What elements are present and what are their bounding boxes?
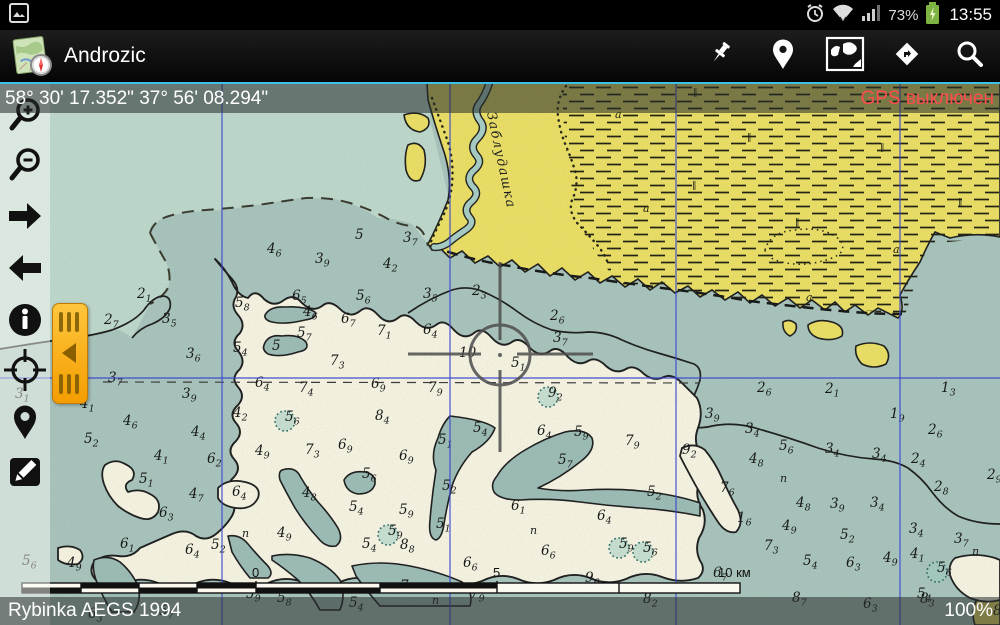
scale-label: 5 bbox=[493, 565, 500, 580]
clock: 13:55 bbox=[949, 5, 992, 25]
coordinate-bar: 58° 30' 17.352" 37° 56' 08.294" GPS выкл… bbox=[0, 84, 1000, 113]
alarm-icon bbox=[805, 3, 825, 28]
pan-right-button[interactable] bbox=[3, 196, 47, 240]
battery-charging-icon bbox=[925, 2, 940, 29]
place-pin-icon bbox=[769, 38, 797, 75]
pan-left-button[interactable] bbox=[3, 248, 47, 292]
crosshair-icon bbox=[3, 348, 47, 397]
chevron-left-icon bbox=[62, 343, 76, 363]
position-button[interactable] bbox=[3, 350, 47, 394]
arrow-left-icon bbox=[5, 251, 45, 290]
arrow-right-icon bbox=[5, 199, 45, 238]
pin-icon bbox=[9, 402, 41, 445]
search-button[interactable] bbox=[938, 31, 1000, 81]
screenshot-icon bbox=[8, 2, 30, 29]
map-name: Rybinka AEGS 1994 bbox=[0, 600, 944, 622]
scale-label: 0 bbox=[252, 565, 259, 580]
place-button[interactable] bbox=[752, 31, 814, 81]
androzic-app-icon bbox=[8, 34, 54, 78]
info-button[interactable] bbox=[3, 300, 47, 344]
edit-icon bbox=[7, 455, 43, 494]
androzic-screen: 2721353637393141524644416249514763646164… bbox=[0, 0, 1000, 625]
zoom-out-icon bbox=[5, 145, 45, 190]
gps-status: GPS выключен bbox=[860, 88, 1000, 110]
signal-icon bbox=[861, 4, 881, 27]
maps-icon bbox=[825, 36, 865, 77]
search-icon bbox=[954, 39, 984, 74]
directions-icon bbox=[892, 39, 922, 74]
map-status-bar: Rybinka AEGS 1994 100% bbox=[0, 597, 1000, 625]
drawer-handle[interactable] bbox=[52, 303, 88, 404]
zoom-level: 100% bbox=[944, 600, 1000, 622]
navigation-button[interactable] bbox=[876, 31, 938, 81]
status-bar: 73% 13:55 bbox=[0, 0, 1000, 30]
action-bar: Androzic bbox=[0, 30, 1000, 84]
pushpin-button[interactable] bbox=[690, 31, 752, 81]
scale-label: 10 км bbox=[718, 565, 751, 580]
maps-button[interactable] bbox=[814, 31, 876, 81]
info-icon bbox=[6, 301, 44, 344]
map-tool-strip bbox=[0, 84, 50, 625]
app-title: Androzic bbox=[64, 44, 690, 68]
edit-button[interactable] bbox=[3, 452, 47, 496]
drawer-handle-grip bbox=[53, 304, 87, 403]
battery-percent: 73% bbox=[888, 7, 918, 24]
cursor-coordinates: 58° 30' 17.352" 37° 56' 08.294" bbox=[0, 88, 860, 110]
zoom-out-button[interactable] bbox=[3, 145, 47, 189]
pushpin-icon bbox=[706, 39, 736, 74]
place-mark-button[interactable] bbox=[3, 401, 47, 445]
wifi-icon bbox=[832, 3, 854, 28]
